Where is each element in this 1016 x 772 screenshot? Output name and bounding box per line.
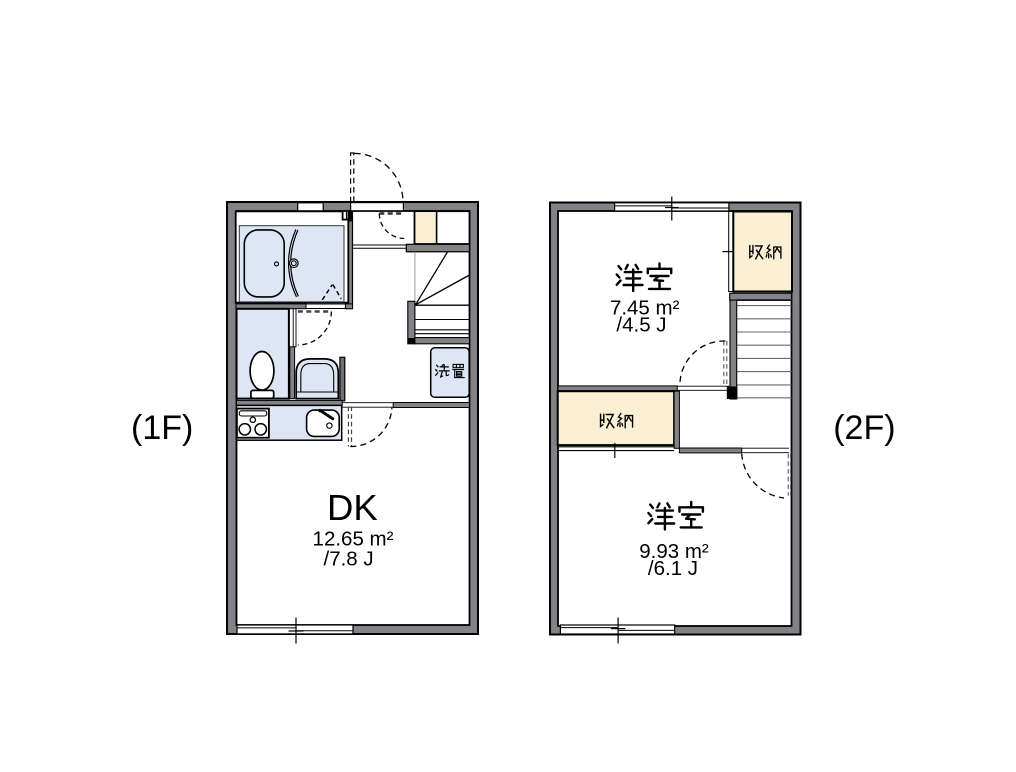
svg-text:/4.5 J: /4.5 J: [616, 313, 666, 336]
svg-text:(1F): (1F): [131, 409, 193, 447]
svg-text:/7.8 J: /7.8 J: [324, 548, 374, 571]
svg-text:/6.1 J: /6.1 J: [648, 557, 698, 580]
svg-text:DK: DK: [327, 487, 378, 528]
svg-text:(2F): (2F): [833, 409, 895, 447]
